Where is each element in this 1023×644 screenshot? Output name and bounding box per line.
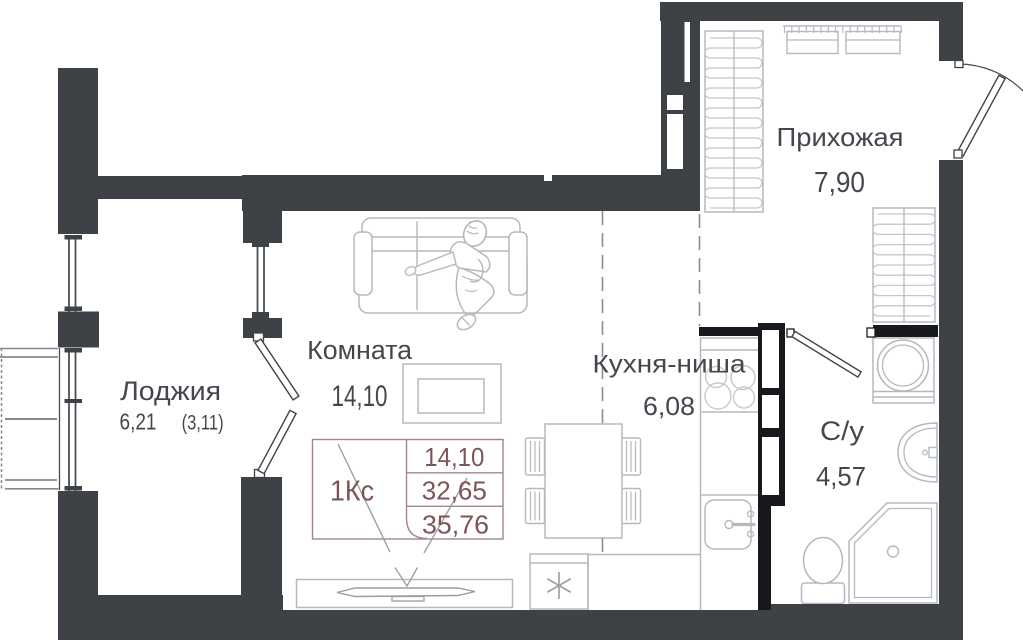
svg-text:Лоджия: Лоджия: [120, 376, 221, 406]
svg-text:Кухня-ниша: Кухня-ниша: [593, 351, 746, 379]
svg-text:6,08: 6,08: [643, 391, 695, 421]
svg-text:(3,11): (3,11): [182, 411, 224, 435]
svg-text:35,76: 35,76: [422, 512, 489, 540]
svg-text:32,65: 32,65: [422, 478, 487, 506]
svg-text:14,10: 14,10: [424, 444, 484, 472]
svg-text:14,10: 14,10: [332, 380, 388, 413]
svg-text:1Кс: 1Кс: [330, 476, 374, 508]
svg-text:Комната: Комната: [307, 337, 413, 365]
svg-text:4,57: 4,57: [816, 462, 866, 492]
svg-text:7,90: 7,90: [814, 167, 865, 199]
svg-text:Прихожая: Прихожая: [777, 122, 904, 152]
svg-text:С/у: С/у: [820, 416, 865, 446]
svg-text:6,21: 6,21: [120, 409, 157, 435]
